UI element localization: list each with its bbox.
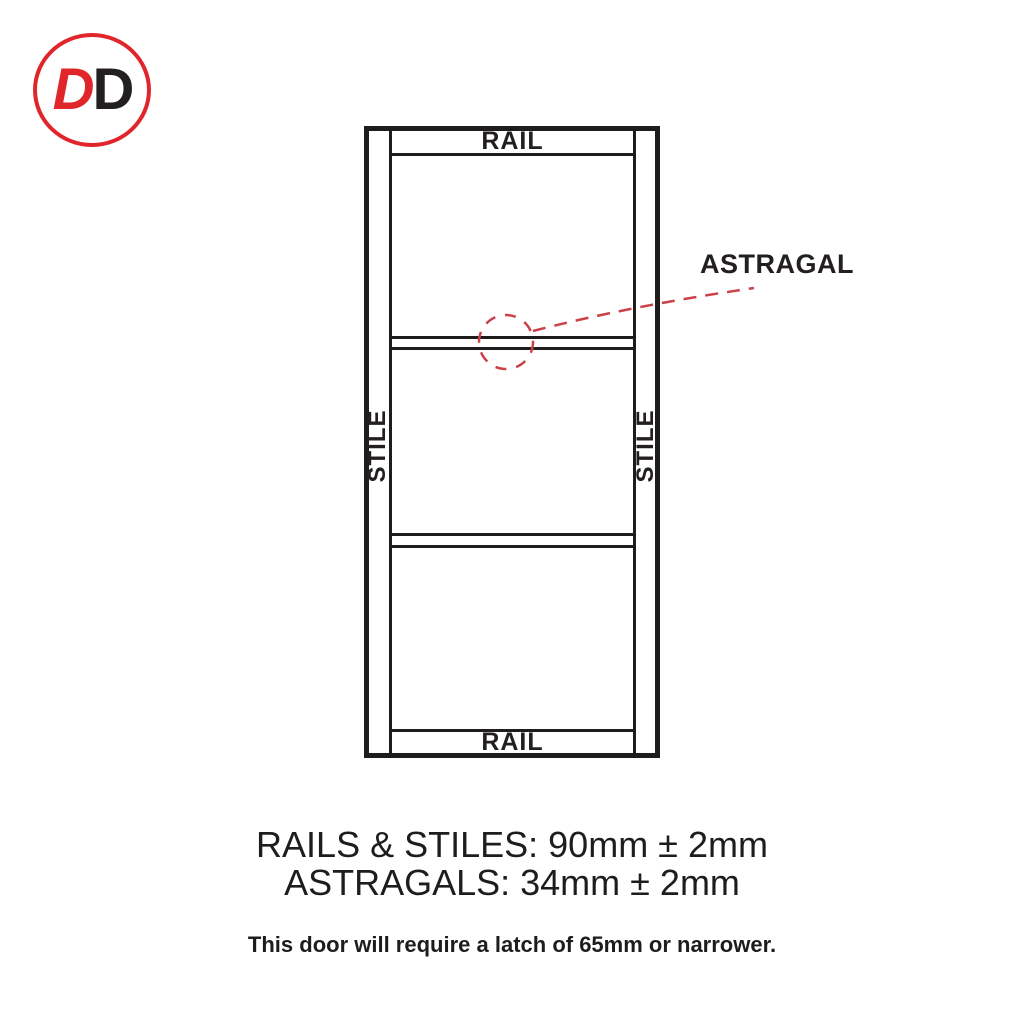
page: D D RAIL RAIL STILE STILE ASTRAGAL RAILS… bbox=[0, 0, 1024, 1024]
dd-logo: D D bbox=[33, 33, 151, 147]
left-stile-label: STILE bbox=[367, 386, 389, 506]
right-stile-label: STILE bbox=[635, 386, 657, 506]
logo-letter-d-black: D bbox=[93, 61, 132, 119]
spec-astragals: ASTRAGALS: 34mm ± 2mm bbox=[0, 864, 1024, 902]
logo-letter-d-red: D bbox=[53, 61, 92, 119]
lower-astragal-bottom-line bbox=[392, 545, 633, 548]
astragal-callout-label: ASTRAGAL bbox=[700, 249, 854, 280]
bottom-rail-label: RAIL bbox=[392, 730, 633, 754]
lower-astragal-top-line bbox=[392, 533, 633, 536]
top-rail-label: RAIL bbox=[392, 129, 633, 153]
upper-astragal-bottom-line bbox=[392, 347, 633, 350]
latch-note: This door will require a latch of 65mm o… bbox=[0, 932, 1024, 958]
door-outline bbox=[364, 126, 660, 758]
spec-rails-stiles: RAILS & STILES: 90mm ± 2mm bbox=[0, 826, 1024, 864]
upper-astragal-top-line bbox=[392, 336, 633, 339]
